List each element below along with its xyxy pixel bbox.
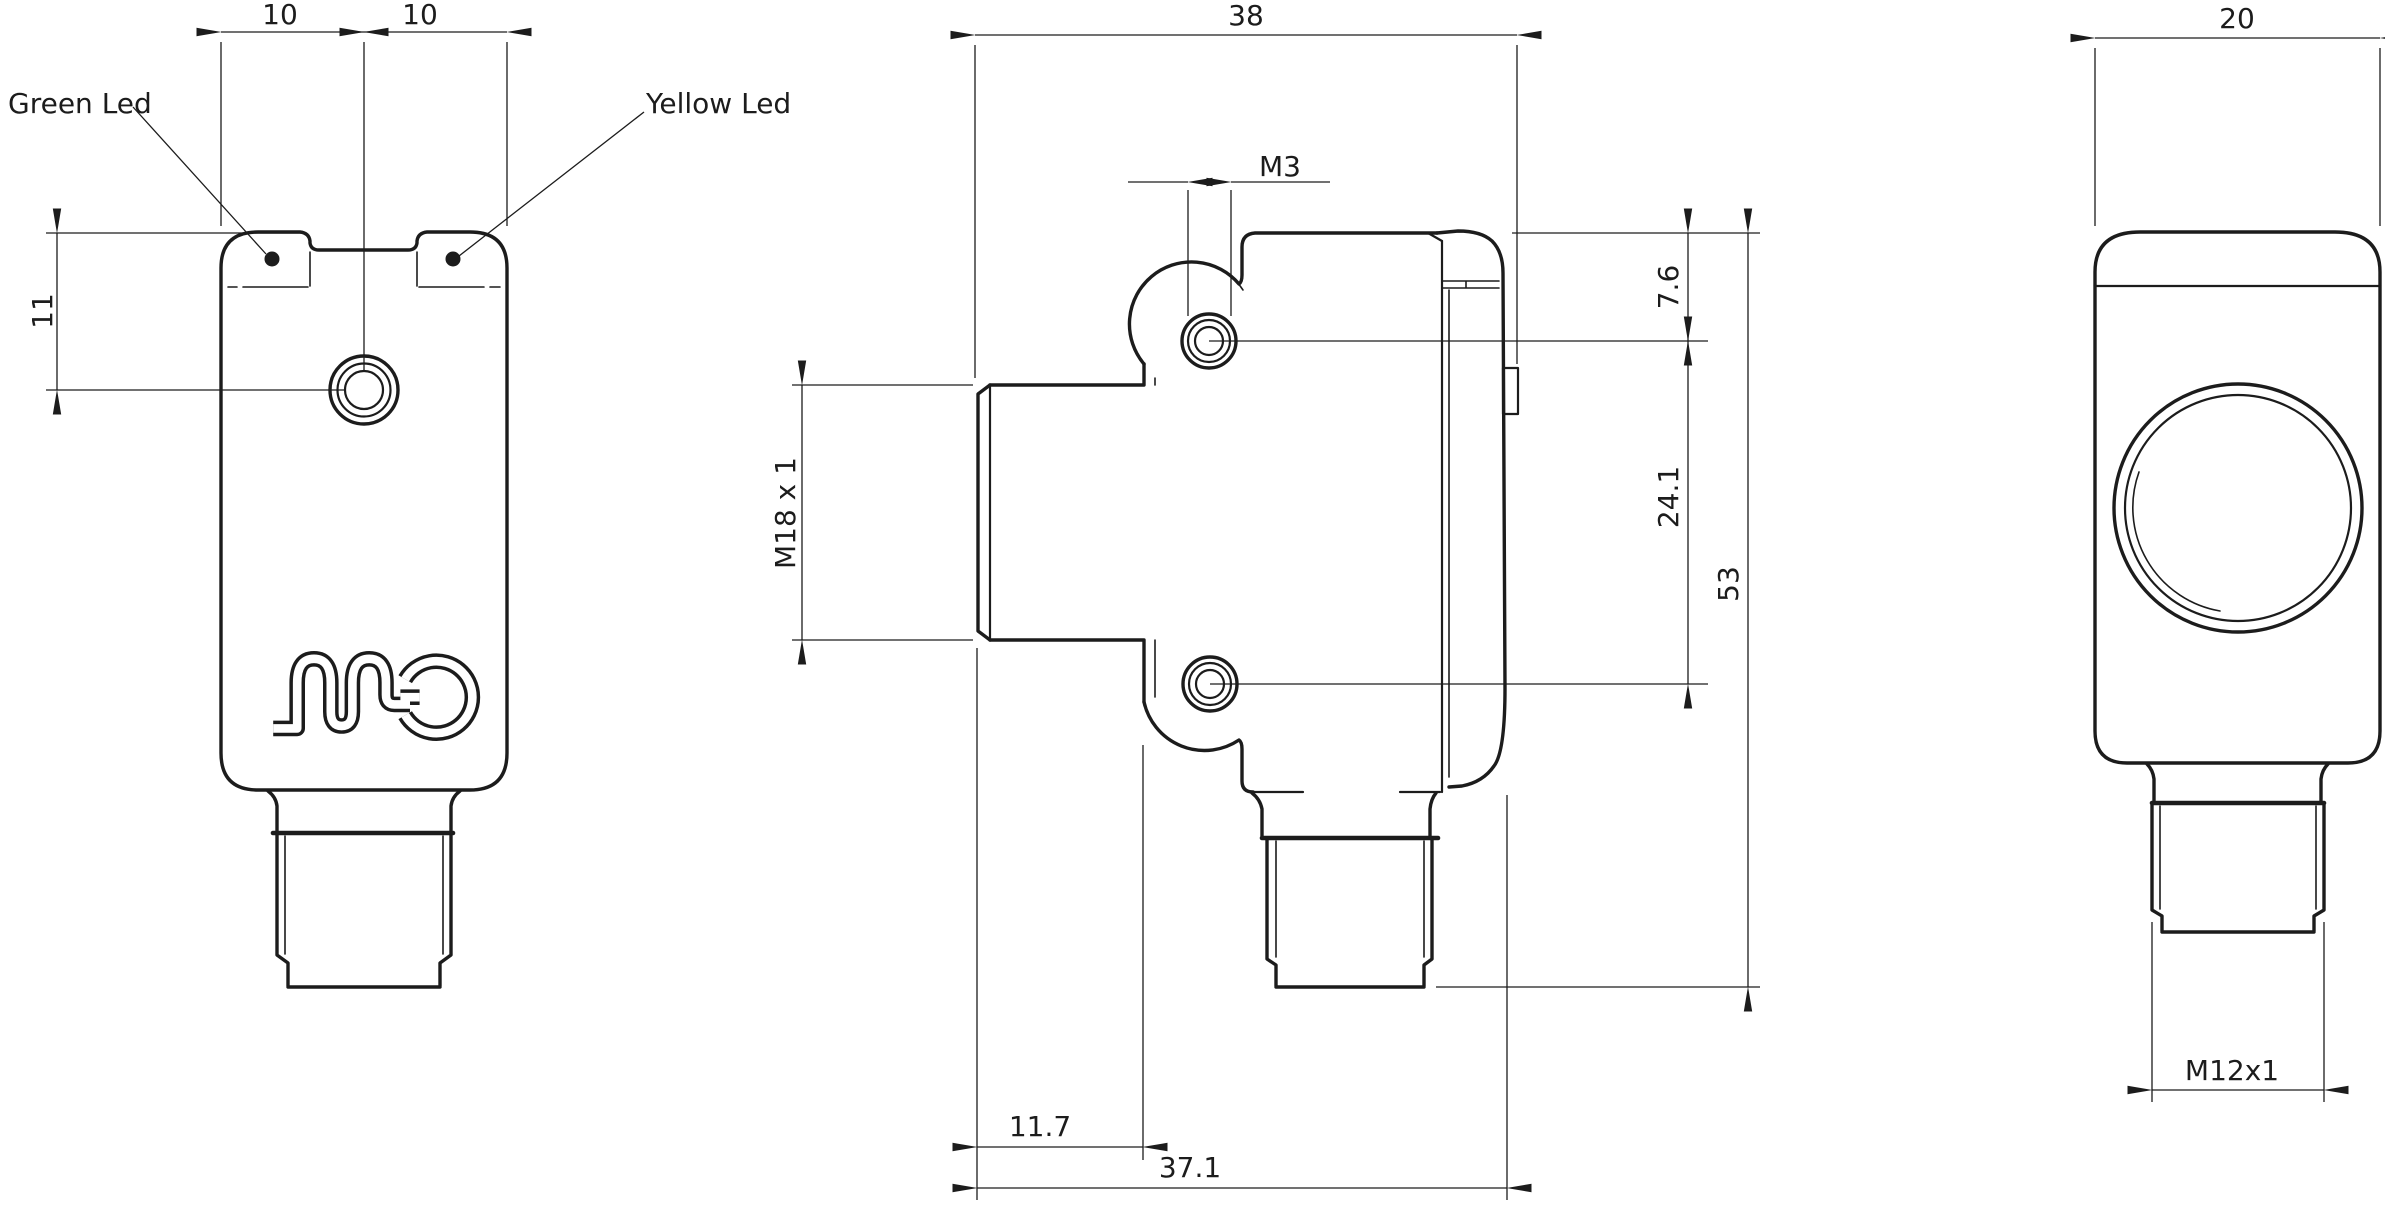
- dim-depth-total: 38: [975, 0, 1517, 378]
- rear-connector-inner-lines: [2160, 806, 2316, 909]
- yellow-led-label: Yellow Led: [645, 87, 791, 120]
- side-collar-sides: [1252, 793, 1436, 836]
- front-connector-inner-lines: [285, 836, 443, 954]
- dim-text-m18x1: M18 x 1: [769, 457, 802, 569]
- side-connector-inner-lines: [1276, 841, 1424, 957]
- green-led-leader-line: [133, 107, 266, 254]
- dim-text-7-6: 7.6: [1652, 265, 1685, 310]
- lens-rings: [2114, 384, 2362, 632]
- front-view: Green Led Yellow Led 10 10 11: [8, 0, 791, 987]
- dim-nose-length: 11.7: [977, 648, 1143, 1200]
- dim-text-11: 11: [26, 293, 59, 329]
- rear-dome-outline: [2095, 232, 2380, 285]
- drawing-canvas: Green Led Yellow Led 10 10 11: [0, 0, 2385, 1208]
- front-collar: [268, 791, 460, 831]
- rear-connector-body: [2152, 805, 2324, 932]
- rear-collar-sides: [2147, 764, 2328, 801]
- front-connector-body: [277, 835, 451, 987]
- dim-text-m3: M3: [1259, 150, 1301, 183]
- dim-text-38: 38: [1228, 0, 1264, 32]
- dim-text-53: 53: [1712, 566, 1745, 602]
- dim-text-37-1: 37.1: [1159, 1151, 1221, 1184]
- dim-text-10-right: 10: [402, 0, 438, 31]
- side-view: 38 M3 7.6 24.1 53 M18 x 1: [769, 0, 1760, 1200]
- dim-hole-spacing: 24.1: [1652, 341, 1688, 684]
- m18-barrel: [978, 385, 1143, 640]
- green-led-label: Green Led: [8, 87, 152, 120]
- md-microdetectors-logo: [273, 659, 472, 733]
- rear-cap-seam: [1442, 281, 1499, 288]
- rear-view: 20 M12x1: [2095, 2, 2380, 1102]
- yellow-led-leader-line: [459, 112, 644, 256]
- dim-lens-thread: M18 x 1: [769, 385, 973, 640]
- dim-connector-thread: M12x1: [2152, 922, 2324, 1102]
- dim-rear-width: 20: [2095, 2, 2380, 226]
- side-top-ear-outline: [1129, 233, 1437, 364]
- green-led-dot: [265, 252, 280, 267]
- dim-text-24-1: 24.1: [1652, 466, 1685, 528]
- dim-front-width: 10 10: [221, 0, 507, 370]
- side-bottom-ear-outline: [1144, 702, 1253, 792]
- dim-text-20: 20: [2219, 2, 2255, 35]
- dim-text-10-left: 10: [262, 0, 298, 31]
- rear-cap-outline: [1437, 231, 1505, 787]
- dim-text-11-7: 11.7: [1009, 1110, 1071, 1143]
- dimensional-drawing: Green Led Yellow Led 10 10 11: [0, 0, 2385, 1208]
- dim-height: 53: [1436, 233, 1760, 987]
- dim-text-m12x1: M12x1: [2185, 1054, 2279, 1087]
- rear-body-outline: [2095, 286, 2380, 763]
- dim-led-offset: 11: [26, 233, 344, 390]
- side-connector-body: [1267, 840, 1432, 987]
- dim-hole-top-offset: 7.6: [1512, 233, 1760, 341]
- yellow-led-dot: [446, 252, 461, 267]
